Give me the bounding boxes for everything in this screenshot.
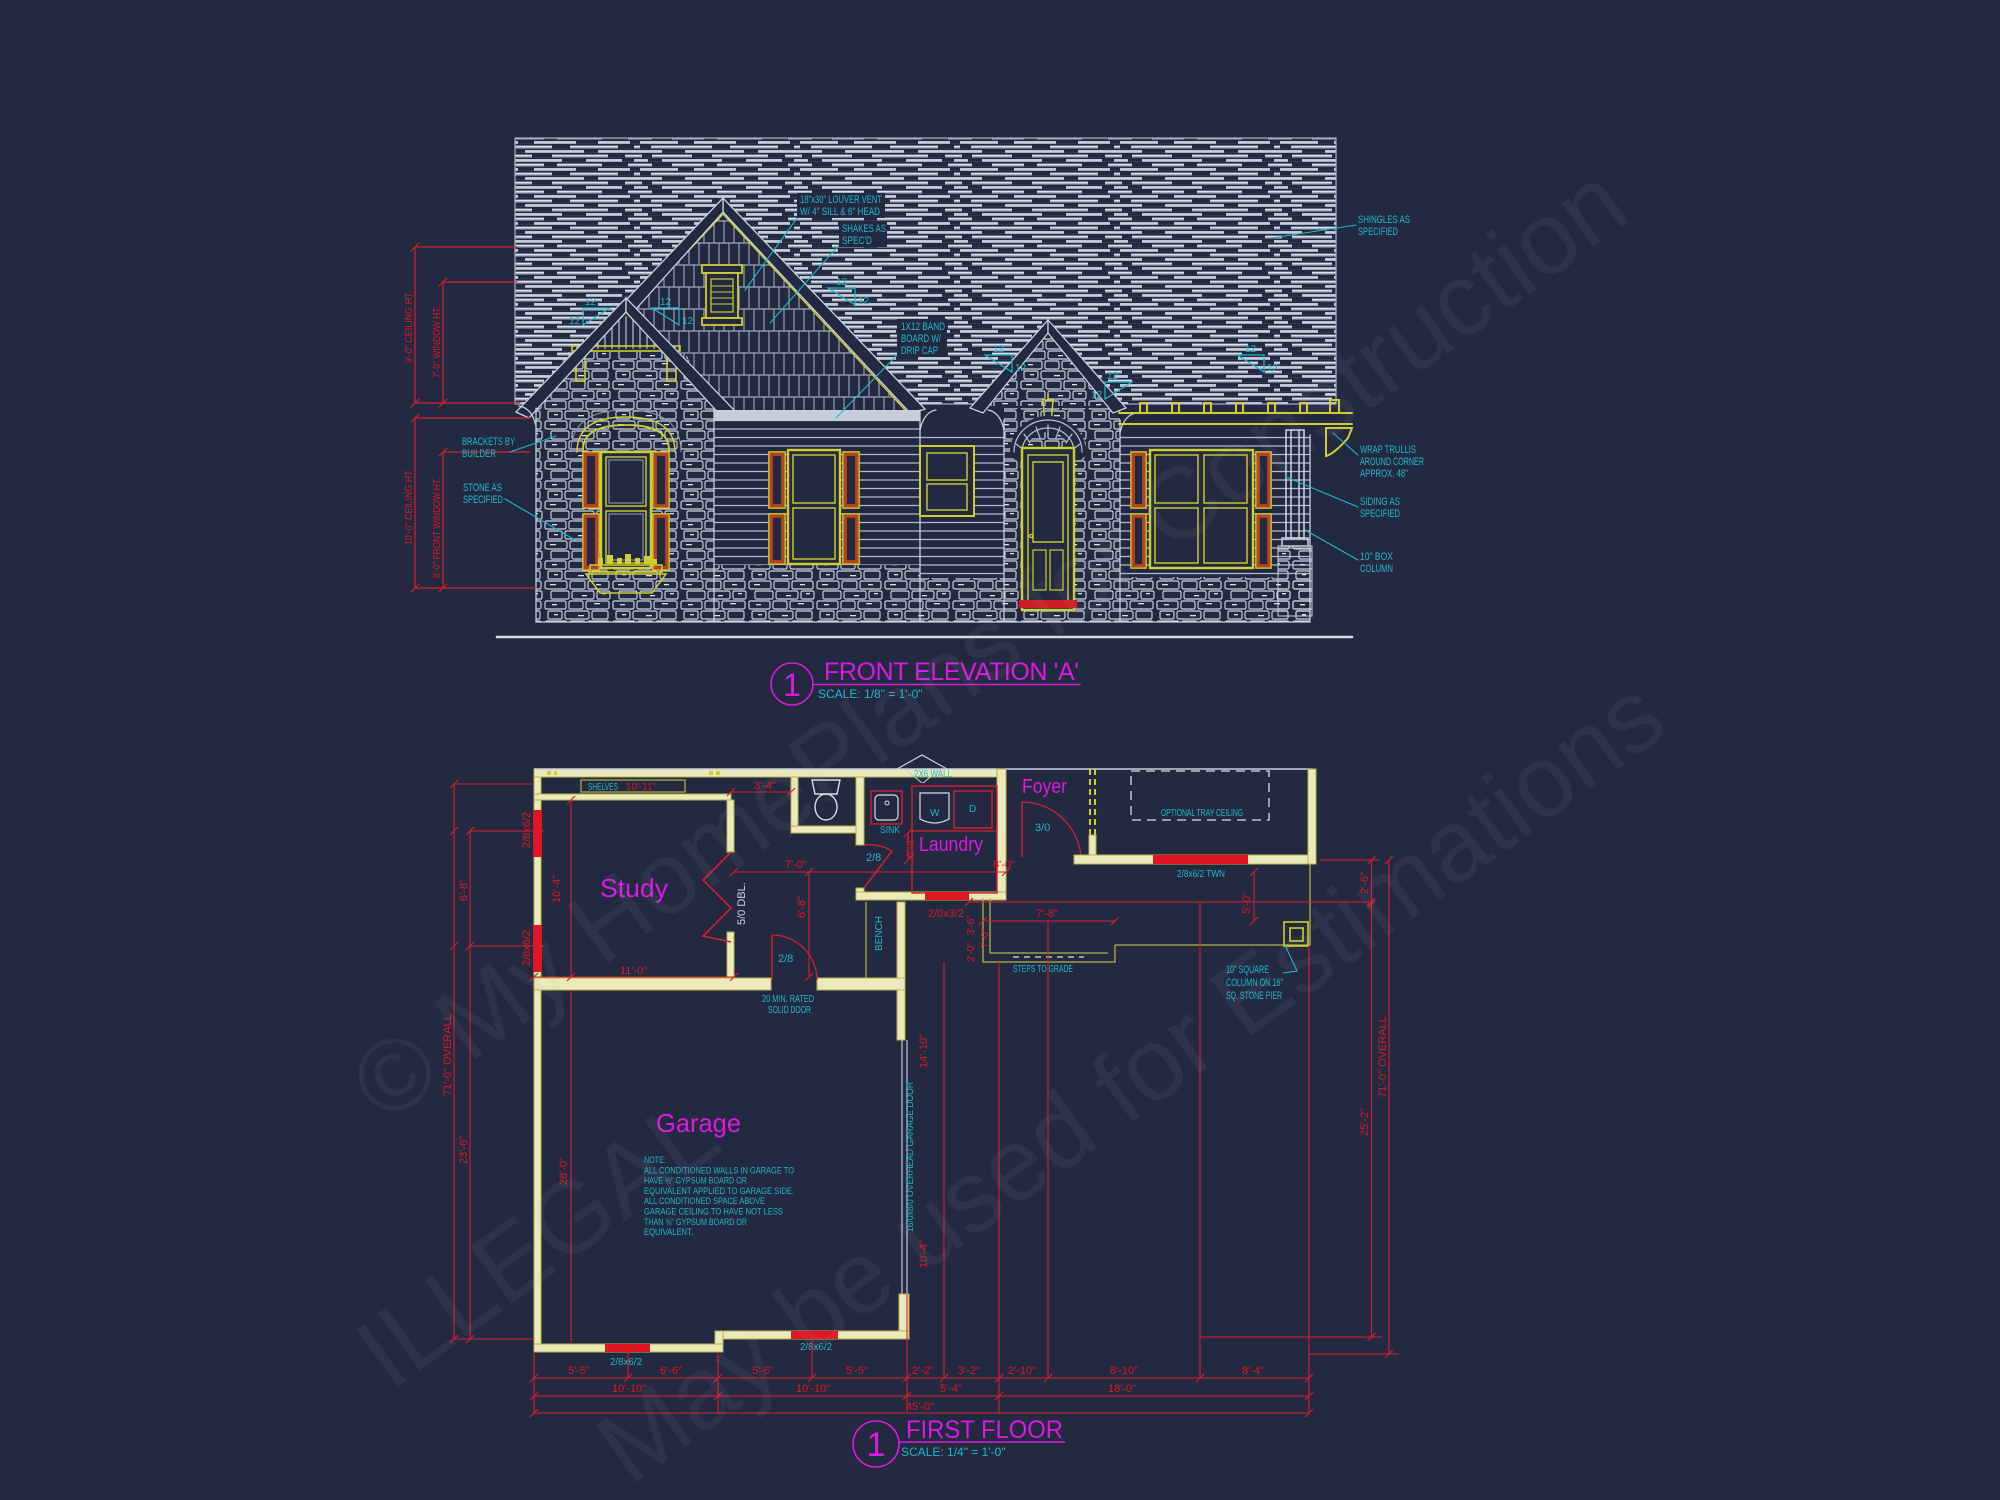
svg-text:8'-10": 8'-10" [1110,1365,1138,1377]
svg-text:1: 1 [783,667,801,703]
svg-text:3/0: 3/0 [1035,822,1050,834]
svg-text:3'-2": 3'-2" [958,1365,980,1377]
svg-text:COLUMN: COLUMN [1360,563,1393,575]
svg-text:6'-8": 6'-8" [458,879,470,901]
svg-text:SHELVES: SHELVES [588,782,618,793]
svg-text:BOARD W/: BOARD W/ [901,333,942,345]
svg-text:10" BOX: 10" BOX [1360,551,1394,563]
svg-text:Foyer: Foyer [1022,776,1067,798]
svg-text:W: W [930,808,940,819]
svg-text:2/8: 2/8 [778,953,793,965]
svg-text:SCALE: 1/4" = 1'-0": SCALE: 1/4" = 1'-0" [901,1445,1006,1459]
svg-text:10'-11": 10'-11" [626,782,656,793]
svg-text:5'-5": 5'-5" [568,1365,590,1377]
svg-text:45'-0": 45'-0" [906,1401,934,1413]
svg-text:2/8x6/2: 2/8x6/2 [610,1357,642,1368]
svg-text:2/0x3/2: 2/0x3/2 [928,908,964,920]
svg-text:14'-10": 14'-10" [918,1034,930,1068]
svg-text:STONE AS: STONE AS [463,482,502,494]
svg-text:2'-0": 2'-0" [966,942,977,962]
svg-text:8'-0" FRONT WINDOW HT.: 8'-0" FRONT WINDOW HT. [432,478,443,578]
svg-text:W/ 4" SILL & 6" HEAD: W/ 4" SILL & 6" HEAD [800,206,880,218]
svg-text:8'-4": 8'-4" [1242,1365,1264,1377]
svg-text:6'-4": 6'-4" [905,836,917,858]
svg-text:SINK: SINK [880,825,900,836]
svg-text:18"x30" LOUVER VENT: 18"x30" LOUVER VENT [800,194,882,206]
svg-text:12: 12 [585,297,597,308]
svg-text:5'-4": 5'-4" [940,1383,962,1395]
svg-text:7'-8": 7'-8" [1036,908,1058,920]
svg-text:BENCH: BENCH [874,916,885,951]
svg-text:AROUND CORNER: AROUND CORNER [1360,456,1424,468]
svg-text:SPEC'D: SPEC'D [842,235,872,247]
svg-text:Laundry: Laundry [919,834,983,856]
svg-text:BUILDER: BUILDER [462,448,496,460]
svg-text:OPTIONAL TRAY CEILING: OPTIONAL TRAY CEILING [1161,808,1243,819]
svg-text:7'-0": 7'-0" [785,859,807,871]
svg-text:2X6 WALL: 2X6 WALL [914,769,952,780]
svg-text:7'-0" WINDOW HT.: 7'-0" WINDOW HT. [432,306,443,378]
svg-text:23'-6": 23'-6" [458,1136,470,1164]
svg-text:18'-0": 18'-0" [1108,1383,1136,1395]
svg-text:2/8x6/2: 2/8x6/2 [521,812,533,848]
svg-text:2'-2": 2'-2" [912,1365,934,1377]
svg-text:12: 12 [836,277,848,288]
svg-text:25'-2": 25'-2" [1359,1108,1371,1136]
svg-text:2'-10": 2'-10" [1008,1365,1036,1377]
svg-text:12: 12 [993,344,1005,355]
svg-text:SHINGLES AS: SHINGLES AS [1358,214,1410,226]
svg-text:8'-0": 8'-0" [993,859,1015,871]
svg-text:12: 12 [1015,363,1027,374]
svg-text:FIRST FLOOR: FIRST FLOOR [906,1416,1063,1444]
svg-text:12: 12 [858,296,870,307]
svg-text:SHAKES AS: SHAKES AS [842,223,886,235]
svg-text:71'-0" OVERALL: 71'-0" OVERALL [1377,1016,1389,1098]
svg-text:7'-0": 7'-0" [980,928,991,948]
svg-text:APPROX. 48": APPROX. 48" [1360,468,1408,480]
svg-text:SOLID DOOR: SOLID DOOR [768,1005,811,1016]
svg-text:D: D [969,804,976,815]
svg-text:6'-8": 6'-8" [796,896,808,918]
svg-text:SPECIFIED: SPECIFIED [463,494,503,506]
svg-text:WRAP TRULLIS: WRAP TRULLIS [1360,444,1416,456]
svg-text:5'-5": 5'-5" [846,1365,868,1377]
svg-text:SIDING AS: SIDING AS [1360,496,1400,508]
svg-text:STEPS TO GRADE: STEPS TO GRADE [1013,964,1073,975]
svg-text:2/8x6/2 TWN: 2/8x6/2 TWN [1177,868,1225,880]
svg-text:12: 12 [569,316,581,327]
svg-text:9'-0" CEILING HT.: 9'-0" CEILING HT. [404,291,415,363]
svg-text:12: 12 [660,297,672,308]
svg-text:10'-0" CEILING HT.: 10'-0" CEILING HT. [404,469,415,545]
svg-text:12: 12 [1091,390,1103,401]
svg-text:12: 12 [682,316,694,327]
svg-text:1X12 BAND: 1X12 BAND [901,321,945,333]
svg-text:SPECIFIED: SPECIFIED [1358,226,1398,238]
svg-text:SPECIFIED: SPECIFIED [1360,508,1400,520]
svg-text:5'-0": 5'-0" [1241,892,1253,914]
svg-text:12: 12 [1245,344,1257,355]
svg-text:12: 12 [1107,371,1119,382]
svg-text:BRACKETS BY: BRACKETS BY [462,436,515,448]
svg-text:20 MIN. RATED: 20 MIN. RATED [762,994,814,1005]
svg-text:1: 1 [867,1426,886,1464]
svg-text:DRIP CAP: DRIP CAP [901,345,938,357]
svg-text:3'-6": 3'-6" [966,915,977,935]
svg-text:2/8: 2/8 [866,852,881,864]
